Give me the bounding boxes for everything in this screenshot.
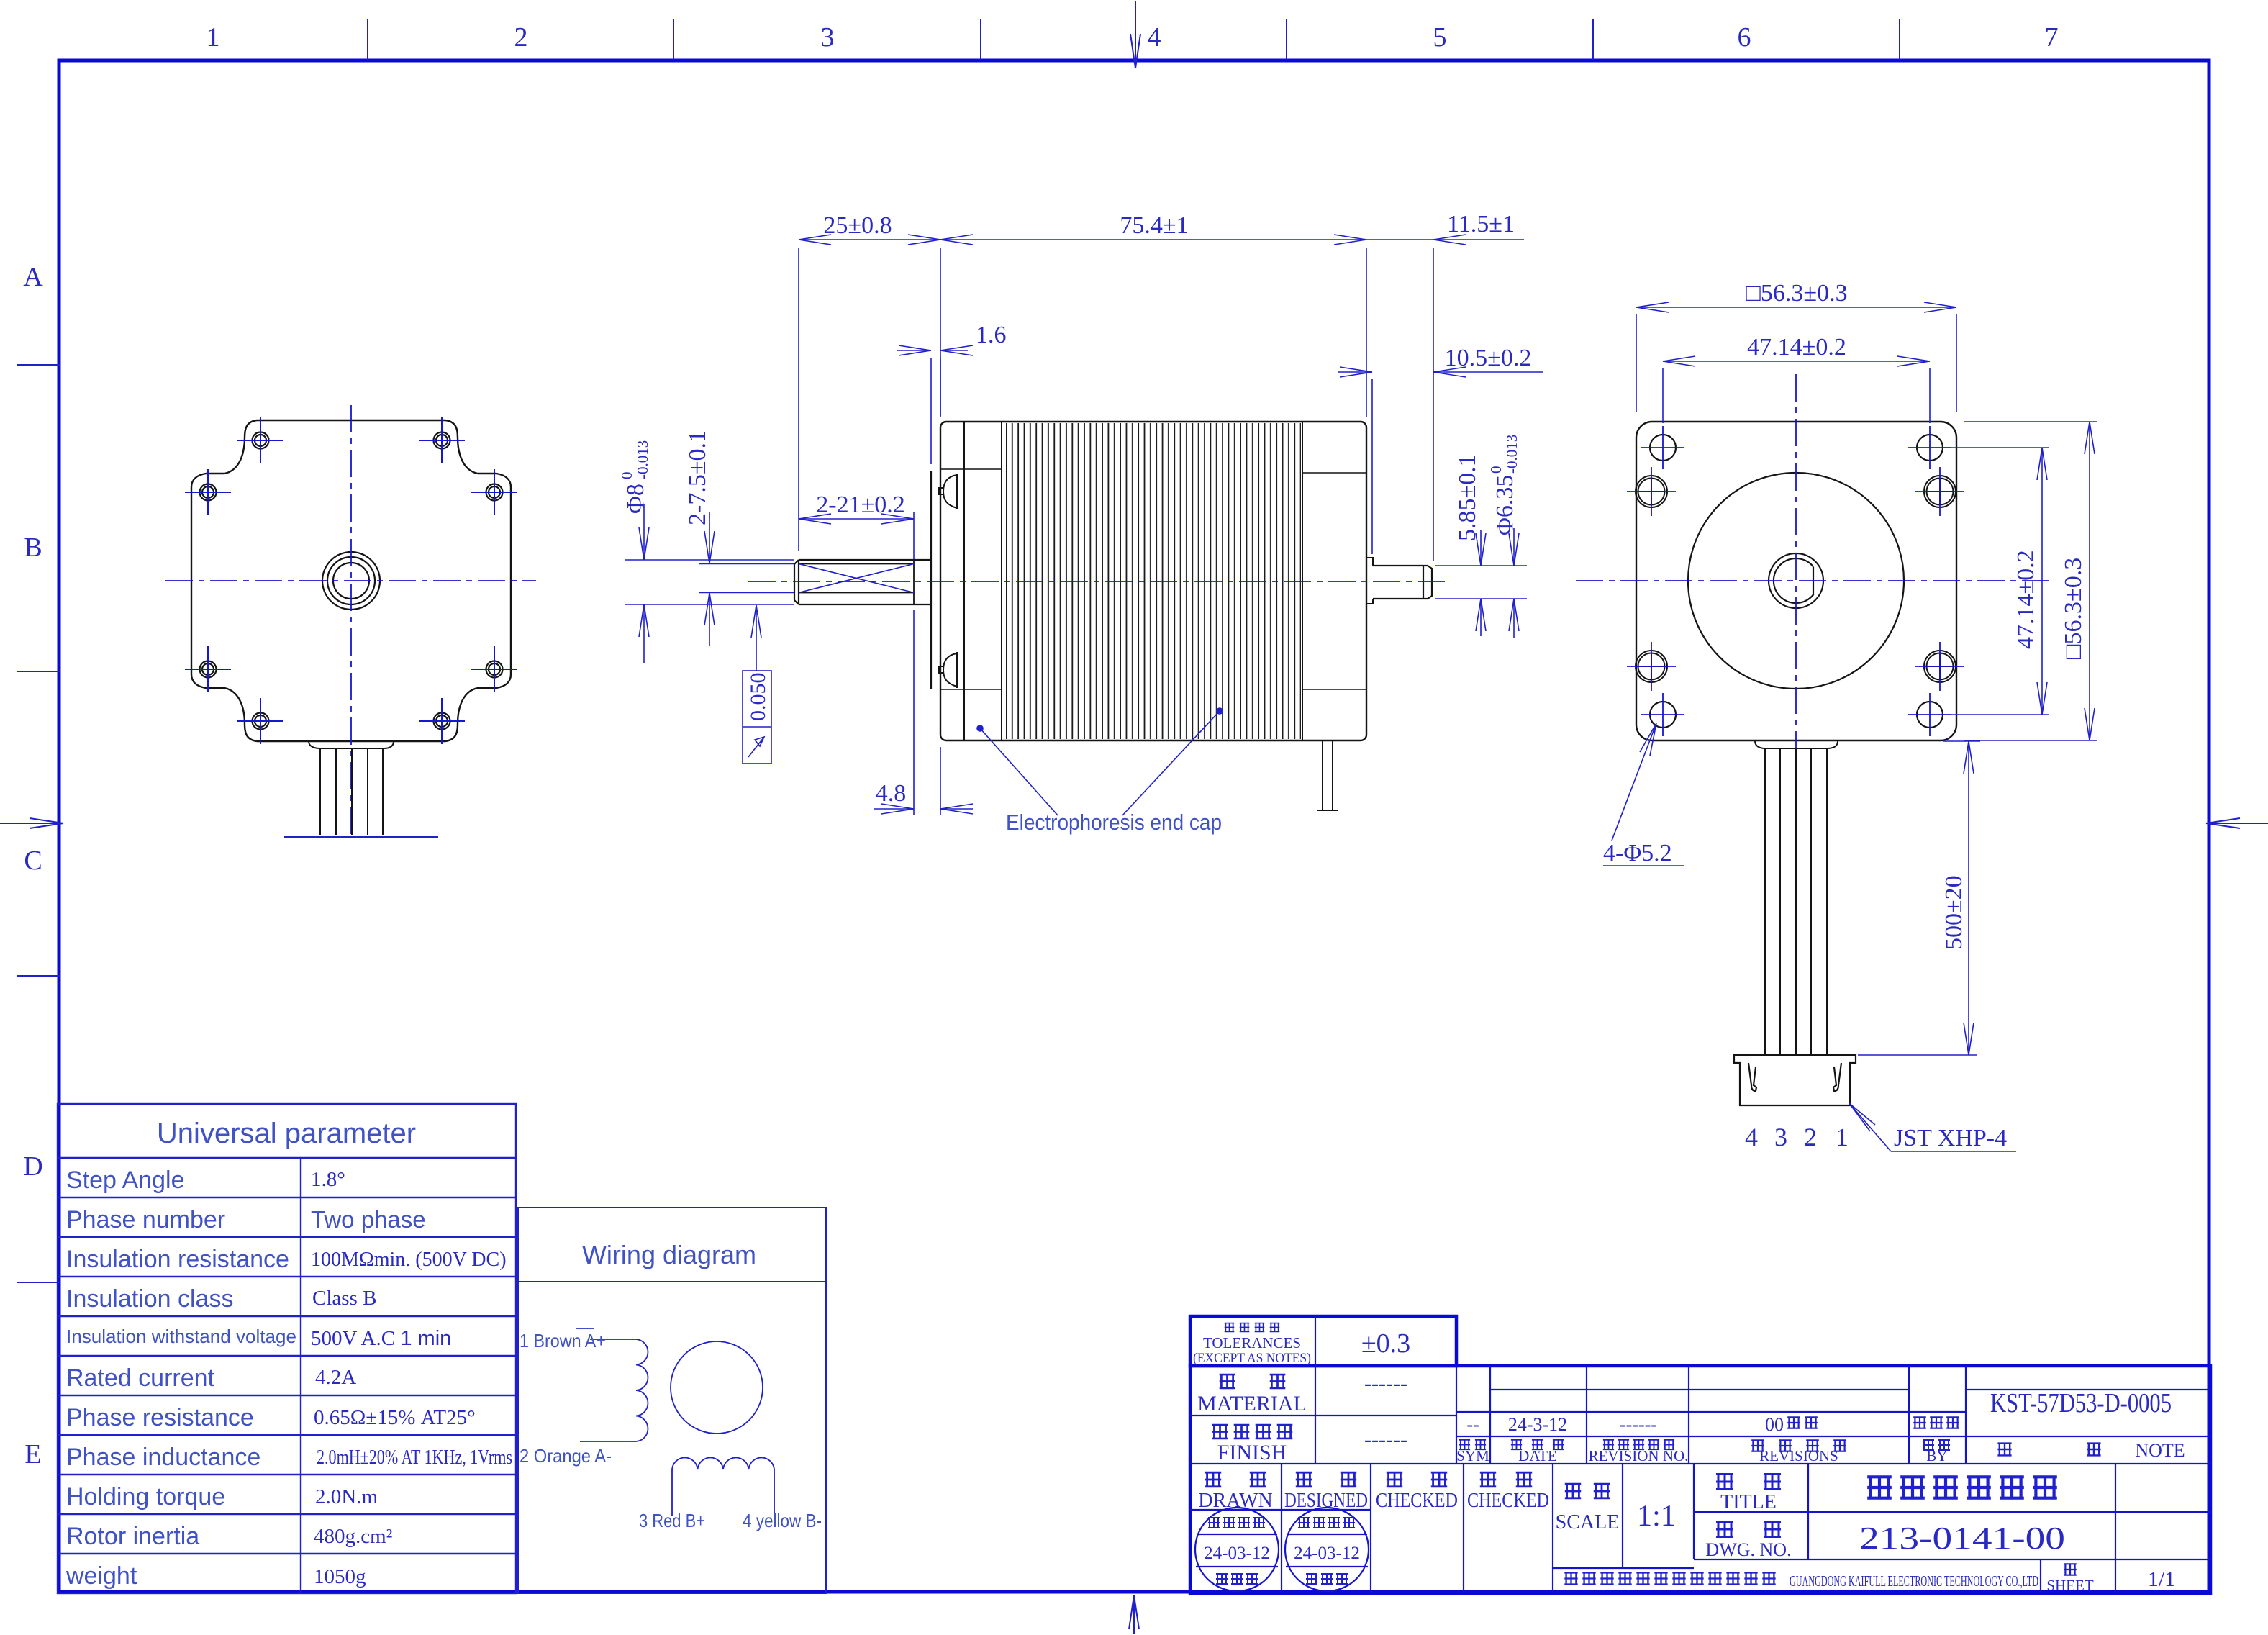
svg-text:1:1: 1:1 [1637,1500,1676,1533]
svg-text:±0.3: ±0.3 [1361,1328,1410,1359]
svg-text:4.2A: 4.2A [315,1366,356,1389]
svg-text:C: C [24,846,42,876]
svg-text:47.14±0.2: 47.14±0.2 [1747,334,1846,361]
svg-text:B: B [24,533,42,563]
svg-text:BY: BY [1926,1447,1947,1464]
svg-text:Electrophoresis end cap: Electrophoresis end cap [1006,810,1222,835]
svg-text:□56.3±0.3: □56.3±0.3 [2060,558,2087,659]
svg-text:Phase inductance: Phase inductance [66,1444,260,1471]
svg-text:1.6: 1.6 [976,322,1007,348]
svg-text:500V A.C 1 min: 500V A.C 1 min [311,1327,451,1350]
svg-text:Class B: Class B [312,1287,376,1310]
svg-text:1.8°: 1.8° [311,1168,345,1191]
svg-text:REVISIONS: REVISIONS [1759,1447,1838,1464]
svg-text:Phase number: Phase number [66,1206,225,1233]
svg-text:2: 2 [1804,1123,1817,1151]
svg-text:Φ6.35: Φ6.35 [1492,475,1518,535]
svg-text:CHECKED: CHECKED [1376,1490,1458,1512]
svg-text:4.8: 4.8 [876,780,907,807]
svg-text:5: 5 [1433,22,1447,53]
svg-text:7: 7 [2045,22,2059,53]
svg-text:Insulation withstand voltage: Insulation withstand voltage [66,1326,296,1347]
svg-text:5.85±0.1: 5.85±0.1 [1454,454,1481,541]
svg-text:2.0N.m: 2.0N.m [315,1485,378,1508]
svg-text:KST-57D53-D-0005: KST-57D53-D-0005 [1990,1388,2172,1418]
svg-text:4: 4 [1148,22,1161,53]
svg-text:500±20: 500±20 [1941,875,1967,950]
svg-text:75.4±1: 75.4±1 [1120,212,1188,239]
svg-text:213-0141-00: 213-0141-00 [1859,1521,2065,1556]
svg-text:6: 6 [1738,22,1751,53]
svg-text:D: D [23,1151,42,1182]
svg-text:100MΩmin. (500V DC): 100MΩmin. (500V DC) [311,1249,507,1271]
svg-text:-0.013: -0.013 [1503,435,1520,474]
svg-text:480g.cm²: 480g.cm² [314,1525,393,1548]
svg-text:E: E [24,1439,41,1469]
svg-text:DATE: DATE [1518,1447,1557,1464]
svg-text:SYM: SYM [1456,1447,1489,1464]
svg-text:REVISION NO.: REVISION NO. [1589,1447,1689,1464]
svg-text:0: 0 [618,472,635,480]
svg-text:SHEET: SHEET [2046,1577,2094,1594]
svg-text:2 Orange A-: 2 Orange A- [520,1445,612,1467]
svg-text:SCALE: SCALE [1556,1511,1620,1534]
svg-text:Φ8: Φ8 [622,484,649,514]
svg-text:47.14±0.2: 47.14±0.2 [2013,550,2039,649]
svg-text:25±0.8: 25±0.8 [823,212,892,239]
svg-text:Rated current: Rated current [66,1364,215,1392]
svg-text:3: 3 [821,22,835,53]
svg-text:24-3-12: 24-3-12 [1508,1414,1567,1435]
svg-text:2-21±0.2: 2-21±0.2 [816,492,904,518]
svg-text:1/1: 1/1 [2148,1567,2175,1591]
svg-text:GUANGDONG KAIFULL ELECTRONIC T: GUANGDONG KAIFULL ELECTRONIC TECHNOLOGY … [1790,1572,2038,1590]
svg-text:Step Angle: Step Angle [66,1167,184,1194]
svg-text:1: 1 [207,22,220,53]
svg-text:1 Brown A+: 1 Brown A+ [520,1330,606,1351]
svg-text:------: ------ [1364,1428,1407,1451]
svg-text:Insulation class: Insulation class [66,1285,233,1313]
svg-text:Rotor inertia: Rotor inertia [66,1523,199,1550]
svg-text:JST XHP-4: JST XHP-4 [1894,1125,2007,1151]
svg-text:2-7.5±0.1: 2-7.5±0.1 [684,430,711,525]
svg-text:------: ------ [1620,1414,1657,1435]
svg-text:4: 4 [1745,1123,1758,1151]
svg-text:------: ------ [1364,1372,1407,1395]
svg-text:Wiring diagram: Wiring diagram [582,1240,756,1269]
svg-text:24-03-12: 24-03-12 [1204,1544,1270,1563]
svg-text:(EXCEPT AS NOTES): (EXCEPT AS NOTES) [1193,1351,1311,1366]
svg-text:FINISH: FINISH [1217,1441,1287,1464]
svg-text:Insulation resistance: Insulation resistance [66,1246,289,1273]
svg-text:Universal parameter: Universal parameter [157,1118,416,1149]
svg-text:TOLERANCES: TOLERANCES [1203,1334,1301,1351]
svg-text:DWG. NO.: DWG. NO. [1705,1539,1791,1560]
svg-text:MATERIAL: MATERIAL [1197,1392,1307,1416]
svg-text:Two phase: Two phase [311,1206,426,1233]
svg-text:DESIGNED: DESIGNED [1284,1490,1368,1512]
svg-text:1: 1 [1836,1123,1849,1151]
svg-text:CHECKED: CHECKED [1467,1490,1549,1512]
svg-text:0.65Ω±15% AT25°: 0.65Ω±15% AT25° [314,1406,476,1429]
svg-text:4-Φ5.2: 4-Φ5.2 [1603,840,1672,866]
svg-text:--: -- [1466,1414,1479,1435]
svg-text:weight: weight [65,1562,137,1590]
svg-text:00: 00 [1765,1414,1784,1435]
svg-text:2: 2 [514,22,528,53]
svg-text:□56.3±0.3: □56.3±0.3 [1746,280,1847,307]
svg-text:0: 0 [1487,466,1505,474]
svg-text:Holding torque: Holding torque [66,1483,225,1511]
svg-text:4 yellow B-: 4 yellow B- [743,1510,822,1531]
svg-text:0.050: 0.050 [746,673,770,722]
svg-text:NOTE: NOTE [2135,1440,2185,1461]
svg-text:3: 3 [1774,1123,1787,1151]
svg-text:TITLE: TITLE [1720,1491,1777,1513]
svg-text:-0.013: -0.013 [634,440,651,479]
svg-text:3 Red B+: 3 Red B+ [639,1510,705,1531]
svg-text:A: A [23,262,43,292]
svg-text:2.0mH±20% AT 1KHz, 1Vrms: 2.0mH±20% AT 1KHz, 1Vrms [317,1446,512,1469]
svg-text:24-03-12: 24-03-12 [1294,1544,1360,1563]
svg-text:DRAWN: DRAWN [1198,1490,1273,1512]
svg-text:10.5±0.2: 10.5±0.2 [1445,345,1532,371]
svg-text:Phase resistance: Phase resistance [66,1404,254,1431]
svg-text:1050g: 1050g [314,1565,366,1588]
svg-text:11.5±1: 11.5±1 [1447,211,1515,237]
